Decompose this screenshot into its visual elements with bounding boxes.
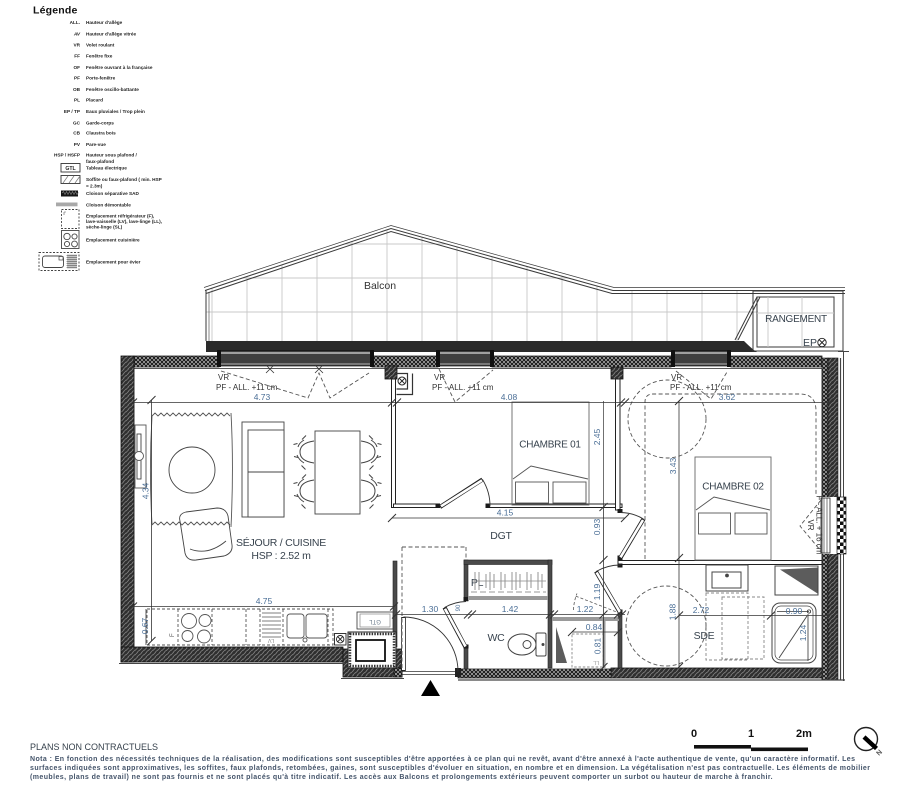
svg-text:Emplacement réfrigérateur (F),: Emplacement réfrigérateur (F), [86,214,154,219]
svg-text:PF: PF [74,76,80,81]
svg-text:PF - ALL. +11 cm: PF - ALL. +11 cm [670,383,732,392]
svg-text:CHAMBRE 01: CHAMBRE 01 [519,440,581,451]
svg-text:0.67: 0.67 [140,617,150,634]
svg-text:PF - ALL. +11 cm: PF - ALL. +11 cm [216,383,278,392]
svg-text:SÉJOUR / CUISINE: SÉJOUR / CUISINE [236,536,326,549]
svg-text:2m: 2m [796,728,812,740]
svg-text:Cloison séparative SAD: Cloison séparative SAD [86,191,139,196]
svg-text:Nota : En fonction des nécessi: Nota : En fonction des nécessités techni… [30,756,855,763]
svg-text:4.75: 4.75 [256,596,273,606]
svg-text:Garde-corps: Garde-corps [86,121,114,126]
svg-text:Fenêtre oscillo-battante: Fenêtre oscillo-battante [86,87,139,92]
svg-text:4.73: 4.73 [254,392,271,402]
svg-text:Placard: Placard [86,98,103,103]
svg-text:Soffite ou faux-plafond ( min: Soffite ou faux-plafond ( min. HSP [86,177,162,182]
svg-text:lave-vaisselle (LV), lave-ling: lave-vaisselle (LV), lave-linge (LL), [86,219,162,224]
svg-text:Hauteur d'allège: Hauteur d'allège [86,20,123,25]
svg-text:AV: AV [73,32,81,37]
svg-text:0.81: 0.81 [593,637,603,654]
svg-text:sèche-linge (SL): sèche-linge (SL) [86,225,123,230]
svg-text:EP: EP [803,337,817,349]
svg-text:VR: VR [73,43,80,48]
svg-text:1.42: 1.42 [502,604,519,614]
svg-text:GTL: GTL [65,166,76,172]
svg-text:PL: PL [471,577,484,589]
svg-text:Fenêtre fixe: Fenêtre fixe [86,54,113,59]
svg-text:(meubles, plans de travail) ne: (meubles, plans de travail) ne sont pas … [30,774,773,781]
svg-text:CHAMBRE 02: CHAMBRE 02 [702,482,764,493]
svg-text:Pare-vue: Pare-vue [86,142,106,147]
svg-text:PL: PL [74,98,80,103]
svg-text:PLANS NON CONTRACTUELS: PLANS NON CONTRACTUELS [30,742,158,752]
svg-text:1.22: 1.22 [577,604,594,614]
svg-text:surfaces indiquées sont approx: surfaces indiquées sont approximatives, … [30,765,870,772]
svg-text:PV: PV [74,142,81,147]
svg-text:VR: VR [806,519,815,530]
svg-text:CB: CB [73,131,80,136]
svg-text:EP / TP: EP / TP [64,109,80,114]
svg-text:4.15: 4.15 [497,508,514,518]
svg-text:Tableau électrique: Tableau électrique [86,166,127,171]
svg-text:WC: WC [488,632,506,644]
svg-text:1.24: 1.24 [798,624,808,641]
svg-text:3.62: 3.62 [719,392,736,402]
svg-text:Fenêtre ouvrant à la française: Fenêtre ouvrant à la française [86,65,153,70]
svg-text:1.30: 1.30 [422,604,439,614]
svg-text:Emplacement cuisinière: Emplacement cuisinière [86,238,140,243]
svg-text:F - ALL. + 16 cm: F - ALL. + 16 cm [815,496,824,555]
svg-text:VR: VR [218,373,229,382]
svg-text:Hauteur sous plafond /: Hauteur sous plafond / [86,153,137,158]
svg-text:4.08: 4.08 [501,392,518,402]
svg-text:Balcon: Balcon [364,280,396,292]
svg-text:RANGEMENT: RANGEMENT [765,314,827,325]
svg-text:Hauteur d'allège vitrée: Hauteur d'allège vitrée [86,32,136,37]
svg-text:VR: VR [434,373,445,382]
svg-text:N: N [875,749,884,758]
svg-text:OB: OB [73,87,81,92]
svg-text:0.90: 0.90 [786,606,803,616]
svg-text:ALL.: ALL. [70,20,80,25]
svg-text:Claustra bois: Claustra bois [86,131,116,136]
svg-text:faux-plafond: faux-plafond [86,159,114,164]
svg-text:2.72: 2.72 [693,605,710,615]
svg-text:0.84: 0.84 [586,622,603,632]
svg-text:Légende: Légende [33,5,78,17]
svg-text:Porte-fenêtre: Porte-fenêtre [86,76,116,81]
svg-text:FF: FF [74,54,80,59]
svg-text:1.19: 1.19 [592,583,602,600]
svg-text:90: 90 [456,604,462,611]
svg-text:Cloison démontable: Cloison démontable [86,203,131,208]
svg-text:3.43: 3.43 [668,457,678,474]
svg-text:GTL: GTL [369,618,381,624]
svg-text:0: 0 [691,728,697,740]
svg-text:LL: LL [593,659,599,665]
svg-text:2.45: 2.45 [592,428,602,445]
svg-text:LV: LV [268,637,275,643]
svg-text:HSP / HSFP: HSP / HSFP [54,153,80,158]
svg-text:Emplacement pour évier: Emplacement pour évier [86,260,141,265]
svg-text:Eaux pluviales / Trop plein: Eaux pluviales / Trop plein [86,109,145,114]
svg-text:DGT: DGT [490,530,512,542]
svg-text:Volet roulant: Volet roulant [86,43,115,48]
svg-text:GC: GC [73,121,81,126]
svg-text:1.88: 1.88 [668,603,678,620]
svg-text:= 2.3m): = 2.3m) [86,184,103,189]
svg-text:OF: OF [73,65,80,70]
svg-text:4.34: 4.34 [141,482,151,499]
svg-text:SDE: SDE [694,630,715,642]
svg-text:HSP : 2.52 m: HSP : 2.52 m [251,550,311,562]
svg-text:F: F [170,633,176,637]
svg-text:PF - ALL. +11 cm: PF - ALL. +11 cm [432,383,494,392]
svg-text:0.93: 0.93 [592,518,602,535]
svg-text:1: 1 [748,728,754,740]
